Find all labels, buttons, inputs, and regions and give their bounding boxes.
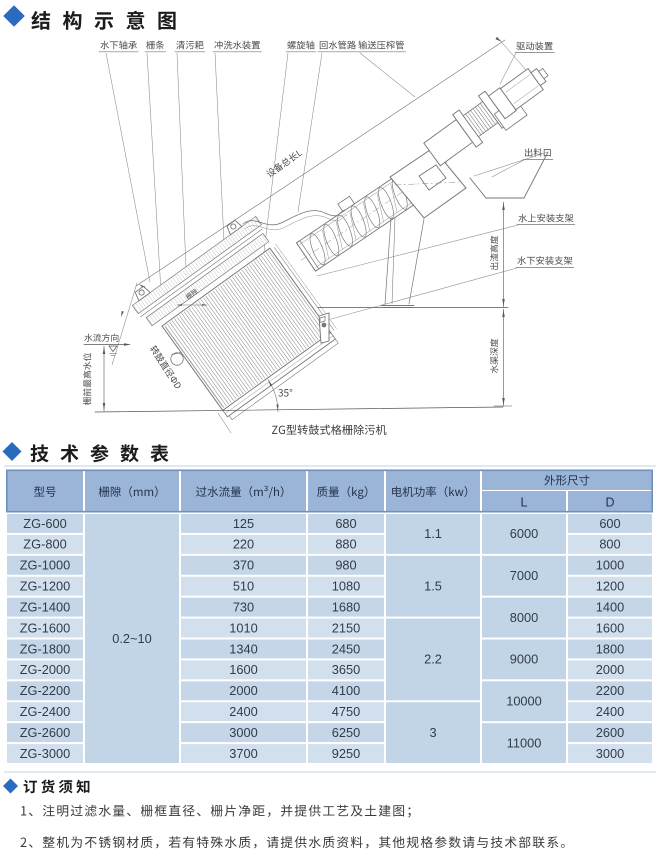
svg-text:600: 600 bbox=[599, 516, 620, 531]
svg-text:7000: 7000 bbox=[510, 568, 538, 583]
svg-text:800: 800 bbox=[599, 537, 620, 552]
svg-text:ZG-2400: ZG-2400 bbox=[20, 704, 71, 719]
svg-text:3650: 3650 bbox=[332, 662, 360, 677]
svg-text:4100: 4100 bbox=[332, 683, 360, 698]
svg-text:ZG-1800: ZG-1800 bbox=[20, 641, 71, 656]
svg-text:510: 510 bbox=[233, 579, 254, 594]
svg-text:1400: 1400 bbox=[596, 599, 624, 614]
svg-text:2000: 2000 bbox=[229, 683, 257, 698]
svg-text:L: L bbox=[521, 496, 528, 510]
svg-text:ZG-2000: ZG-2000 bbox=[20, 662, 71, 677]
svg-text:1080: 1080 bbox=[332, 579, 360, 594]
svg-text:ZG-800: ZG-800 bbox=[23, 537, 66, 552]
svg-text:ZG-1600: ZG-1600 bbox=[20, 620, 71, 635]
svg-text:2400: 2400 bbox=[596, 704, 624, 719]
svg-text:10000: 10000 bbox=[506, 694, 542, 709]
svg-text:1.1: 1.1 bbox=[424, 526, 442, 541]
svg-text:11000: 11000 bbox=[507, 735, 542, 750]
svg-text:2000: 2000 bbox=[596, 662, 624, 677]
svg-text:9000: 9000 bbox=[510, 652, 538, 667]
svg-text:1800: 1800 bbox=[596, 641, 624, 656]
svg-text:1600: 1600 bbox=[596, 620, 624, 635]
svg-text:ZG-1200: ZG-1200 bbox=[20, 579, 71, 594]
svg-text:6000: 6000 bbox=[510, 526, 538, 541]
svg-text:3000: 3000 bbox=[229, 725, 257, 740]
svg-text:880: 880 bbox=[335, 537, 356, 552]
svg-text:1340: 1340 bbox=[229, 641, 257, 656]
svg-text:ZG-2600: ZG-2600 bbox=[20, 725, 71, 740]
svg-text:370: 370 bbox=[233, 558, 254, 573]
svg-text:2.2: 2.2 bbox=[424, 652, 442, 667]
svg-text:4750: 4750 bbox=[332, 704, 360, 719]
svg-text:2150: 2150 bbox=[332, 620, 360, 635]
svg-text:ZG-600: ZG-600 bbox=[23, 516, 66, 531]
svg-text:2450: 2450 bbox=[332, 641, 360, 656]
svg-text:9250: 9250 bbox=[332, 746, 360, 761]
svg-text:3000: 3000 bbox=[596, 746, 624, 761]
svg-text:1200: 1200 bbox=[596, 579, 624, 594]
svg-text:0.2~10: 0.2~10 bbox=[112, 631, 152, 646]
svg-text:3: 3 bbox=[429, 725, 436, 740]
svg-text:ZG-3000: ZG-3000 bbox=[20, 746, 71, 761]
svg-text:2600: 2600 bbox=[596, 725, 624, 740]
svg-text:220: 220 bbox=[233, 537, 254, 552]
svg-text:3700: 3700 bbox=[229, 746, 257, 761]
svg-text:1.5: 1.5 bbox=[424, 579, 442, 594]
svg-text:1000: 1000 bbox=[596, 558, 624, 573]
svg-text:1680: 1680 bbox=[332, 599, 360, 614]
svg-text:8000: 8000 bbox=[510, 610, 538, 625]
svg-text:6250: 6250 bbox=[332, 725, 360, 740]
svg-text:1600: 1600 bbox=[229, 662, 257, 677]
svg-text:ZG-1000: ZG-1000 bbox=[20, 558, 71, 573]
svg-text:ZG-2200: ZG-2200 bbox=[20, 683, 71, 698]
svg-text:2400: 2400 bbox=[229, 704, 257, 719]
svg-text:D: D bbox=[605, 496, 614, 510]
svg-text:680: 680 bbox=[335, 516, 356, 531]
svg-text:2200: 2200 bbox=[596, 683, 624, 698]
svg-text:980: 980 bbox=[335, 558, 356, 573]
svg-text:1010: 1010 bbox=[229, 620, 257, 635]
svg-text:ZG-1400: ZG-1400 bbox=[20, 599, 71, 614]
svg-text:125: 125 bbox=[233, 516, 254, 531]
svg-text:730: 730 bbox=[233, 599, 254, 614]
